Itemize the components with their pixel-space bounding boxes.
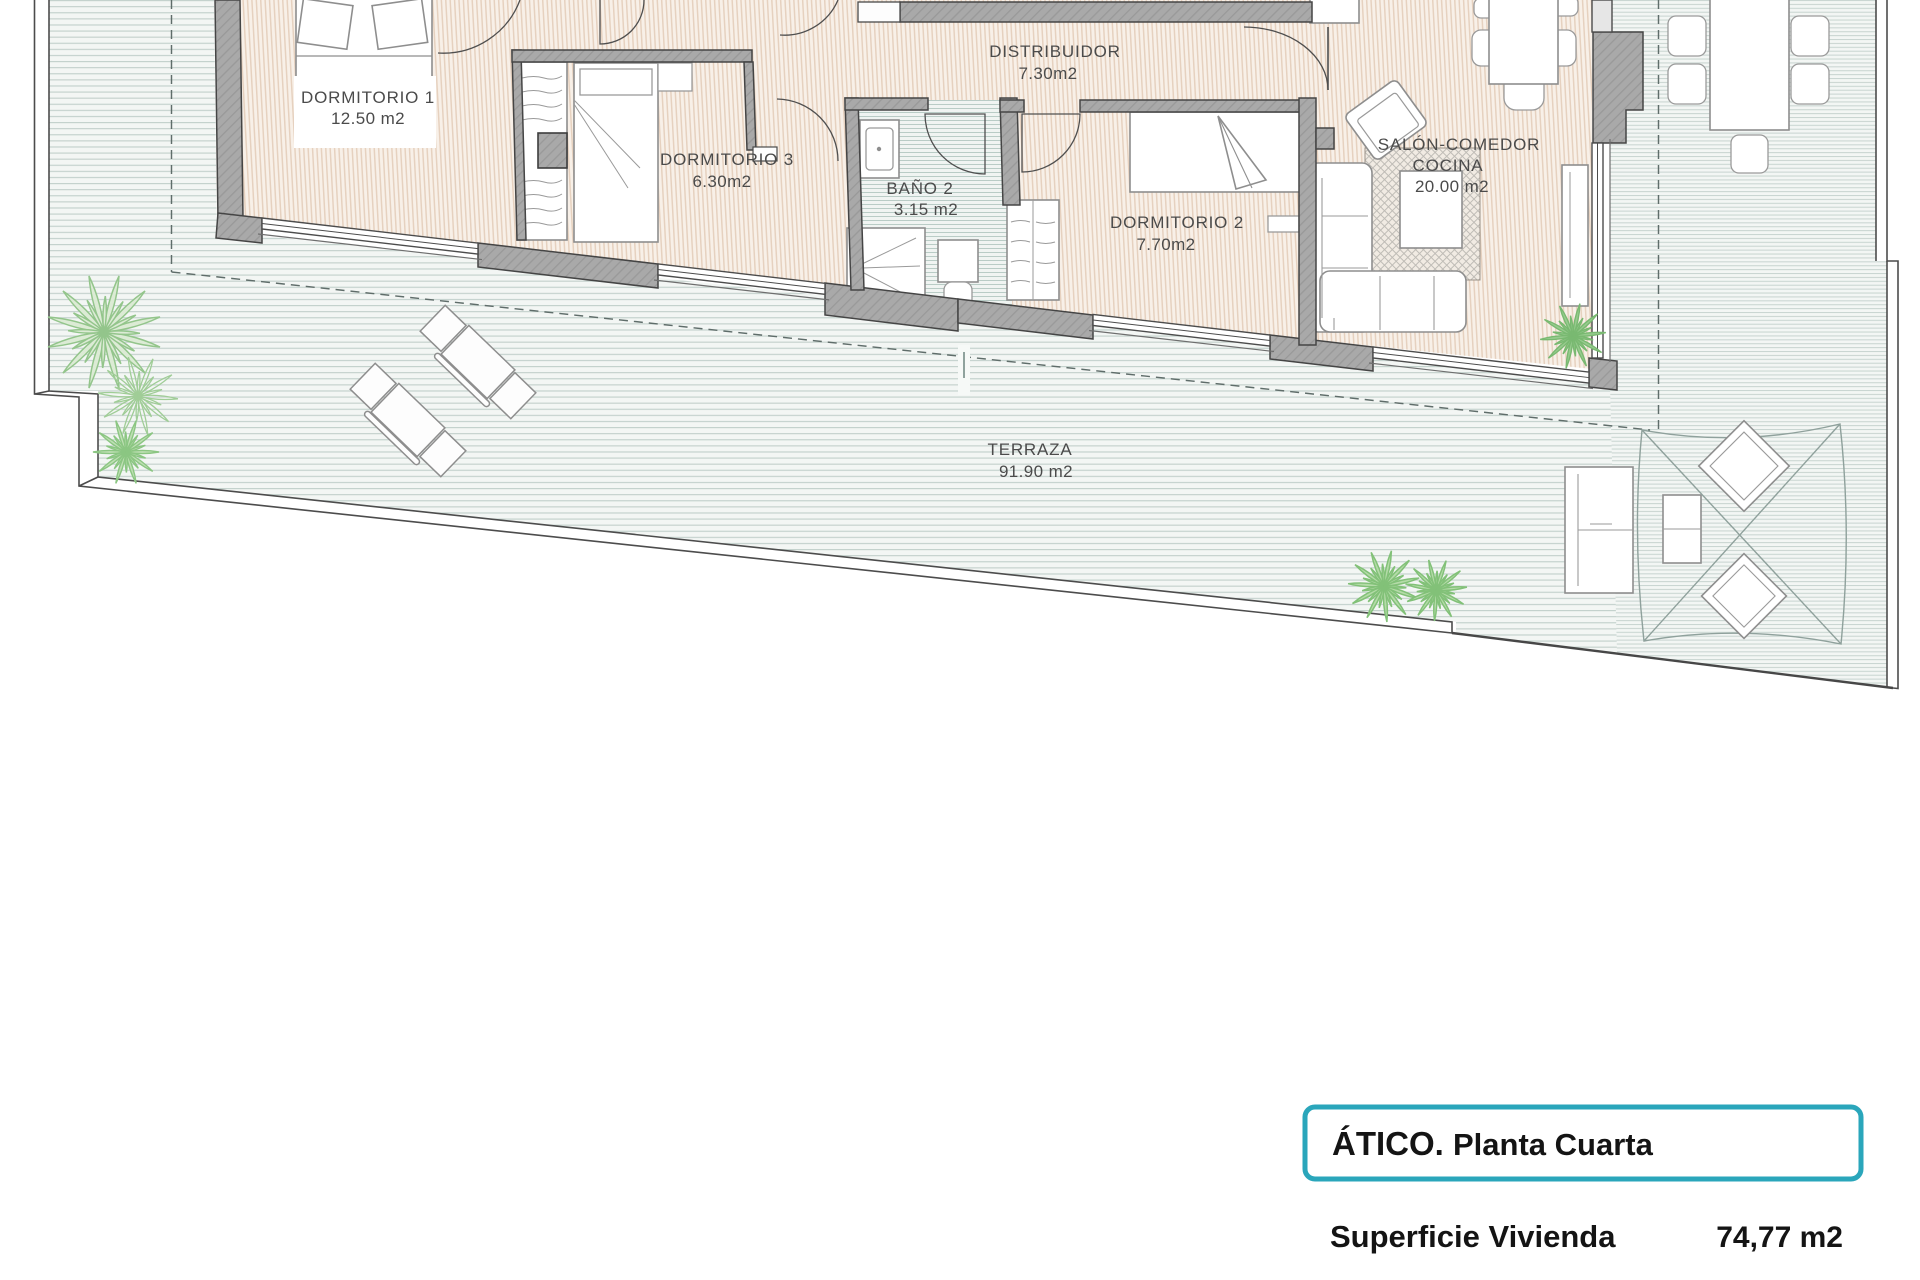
svg-text:DISTRIBUIDOR: DISTRIBUIDOR (989, 42, 1120, 61)
svg-text:DORMITORIO 1: DORMITORIO 1 (301, 88, 435, 107)
svg-text:DORMITORIO 3: DORMITORIO 3 (660, 150, 794, 169)
svg-text:12.50 m2: 12.50 m2 (331, 109, 405, 128)
svg-text:TERRAZA: TERRAZA (988, 440, 1073, 459)
svg-text:6.30m2: 6.30m2 (692, 172, 751, 191)
svg-text:COCINA: COCINA (1413, 156, 1484, 175)
svg-text:Planta Cuarta: Planta Cuarta (1453, 1127, 1654, 1162)
svg-text:BAÑO 2: BAÑO 2 (886, 179, 953, 198)
svg-text:3.15 m2: 3.15 m2 (894, 200, 958, 219)
svg-text:DORMITORIO 2: DORMITORIO 2 (1110, 213, 1244, 232)
svg-text:20.00 m2: 20.00 m2 (1415, 177, 1489, 196)
svg-text:SALÓN-COMEDOR: SALÓN-COMEDOR (1378, 135, 1540, 154)
svg-text:74,77 m2: 74,77 m2 (1716, 1221, 1843, 1254)
svg-text:ÁTICO.: ÁTICO. (1332, 1125, 1444, 1162)
svg-text:7.70m2: 7.70m2 (1136, 235, 1195, 254)
svg-text:7.30m2: 7.30m2 (1018, 64, 1077, 83)
svg-text:91.90 m2: 91.90 m2 (999, 462, 1073, 481)
svg-text:Superficie Vivienda: Superficie Vivienda (1330, 1219, 1616, 1254)
